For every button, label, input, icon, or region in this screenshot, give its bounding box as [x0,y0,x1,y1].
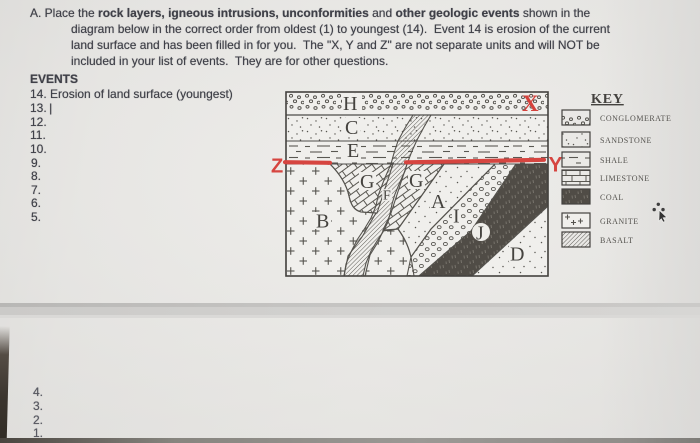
svg-text:SHALE: SHALE [600,156,628,165]
svg-text:CONGLOMERATE: CONGLOMERATE [600,114,671,123]
svg-text:BASALT: BASALT [600,236,633,245]
svg-text:Z: Z [271,156,283,178]
svg-text:J: J [476,223,484,245]
svg-text:D: D [510,244,524,266]
svg-text:KEY: KEY [591,92,624,107]
svg-text:X: X [522,91,539,116]
svg-text:F: F [383,189,391,204]
svg-text:H: H [343,93,357,115]
svg-text:LIMESTONE: LIMESTONE [600,174,650,183]
svg-text:A: A [431,191,446,213]
svg-text:I: I [453,206,460,228]
svg-text:GRANITE: GRANITE [600,217,639,226]
svg-text:B: B [316,211,329,233]
svg-text:Y: Y [549,154,563,177]
svg-text:G: G [360,171,374,193]
svg-text:SANDSTONE: SANDSTONE [600,136,652,145]
svg-text:COAL: COAL [600,193,624,202]
svg-text:G: G [409,170,423,192]
svg-text:C: C [345,117,358,139]
svg-text:E: E [347,140,359,162]
